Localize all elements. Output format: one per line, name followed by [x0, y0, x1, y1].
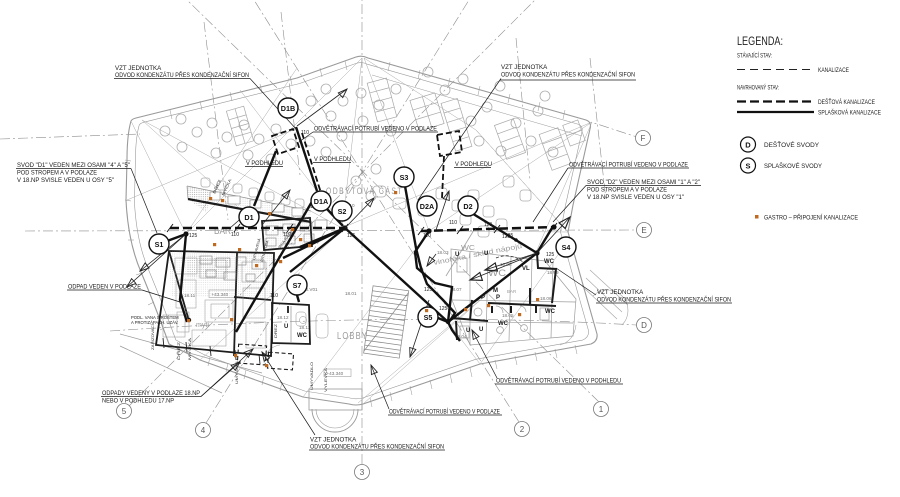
svg-text:18.05: 18.05 [502, 313, 514, 318]
svg-text:WC: WC [498, 321, 509, 327]
svg-text:D1B: D1B [281, 104, 295, 113]
svg-text:1: 1 [599, 405, 604, 414]
svg-text:GASTRO – PŘIPOJENÍ KANALIZACE: GASTRO – PŘIPOJENÍ KANALIZACE [764, 214, 858, 222]
svg-text:SVOD "D1" VEDEN MEZI OSAMI "4": SVOD "D1" VEDEN MEZI OSAMI "4" A "5" [17, 162, 130, 169]
svg-text:UMYVADLO: UMYVADLO [235, 356, 239, 384]
svg-text:VL: VL [522, 266, 530, 272]
svg-text:D2A: D2A [420, 202, 434, 211]
svg-text:ODVOD KONDENZÁTU PŘES KONDENZA: ODVOD KONDENZÁTU PŘES KONDENZAČNÍ SIFON [115, 71, 249, 79]
svg-text:110: 110 [270, 293, 278, 299]
svg-text:KANALIZACE: KANALIZACE [818, 67, 849, 74]
svg-text:VZT JEDNOTKA: VZT JEDNOTKA [115, 65, 162, 72]
svg-text:125: 125 [505, 233, 514, 239]
svg-text:S7: S7 [293, 281, 302, 290]
svg-text:110: 110 [484, 222, 492, 228]
svg-text:ODVĚTRÁVACÍ POTRUBÍ VEDENO V P: ODVĚTRÁVACÍ POTRUBÍ VEDENO V PODHLEDU [496, 377, 621, 385]
svg-text:E: E [641, 226, 646, 235]
svg-text:ODVĚTRÁVACÍ POTRUBÍ VEDENO V P: ODVĚTRÁVACÍ POTRUBÍ VEDENO V PODLAZE [569, 161, 688, 169]
svg-text:VZT JEDNOTKA: VZT JEDNOTKA [501, 64, 548, 71]
svg-text:S5: S5 [424, 313, 433, 322]
svg-text:VZT JEDNOTKA: VZT JEDNOTKA [310, 437, 357, 444]
svg-text:ODVOD KONDENZÁTU PŘES KONDENZA: ODVOD KONDENZÁTU PŘES KONDENZAČNÍ SIFON [597, 296, 731, 304]
svg-text:V PODHLEDU: V PODHLEDU [246, 160, 283, 167]
svg-text:ODBYTOVÁ ČÁST: ODBYTOVÁ ČÁST [326, 186, 403, 197]
svg-text:U: U [284, 324, 288, 330]
svg-text:S4: S4 [562, 243, 571, 252]
svg-text:18.03: 18.03 [437, 250, 449, 255]
svg-text:S: S [745, 162, 750, 171]
svg-text:125: 125 [439, 306, 448, 312]
svg-text:F: F [641, 134, 646, 143]
svg-text:S2: S2 [338, 207, 347, 216]
svg-text:P: P [481, 295, 485, 301]
svg-text:ZAŘIZOVACÍ: ZAŘIZOVACÍ [150, 323, 155, 350]
svg-text:D: D [745, 141, 751, 150]
svg-text:S3: S3 [400, 173, 409, 182]
svg-text:ODVĚTRÁVACÍ POTRUBÍ VEDENO V P: ODVĚTRÁVACÍ POTRUBÍ VEDENO V PODLAZE [389, 408, 500, 416]
svg-text:DREZ: DREZ [274, 323, 278, 338]
svg-text:U: U [484, 251, 488, 257]
svg-text:2: 2 [520, 425, 525, 434]
svg-text:ODPAD VEDEN V PODLAZE: ODPAD VEDEN V PODLAZE [68, 284, 141, 291]
svg-text:110: 110 [449, 220, 457, 226]
svg-text:P: P [496, 295, 500, 301]
svg-text:WC: WC [545, 309, 556, 315]
svg-text:5: 5 [122, 407, 127, 416]
svg-text:LOBBY: LOBBY [337, 331, 368, 342]
svg-text:LEGENDA:: LEGENDA: [737, 36, 783, 48]
svg-text:SVOD "D2" VEDEN MEZI OSAMI "1": SVOD "D2" VEDEN MEZI OSAMI "1" A "2" [587, 179, 700, 186]
svg-text:D2: D2 [463, 202, 472, 211]
svg-text:18.06: 18.06 [540, 296, 552, 301]
svg-text:110: 110 [301, 130, 309, 136]
svg-text:110: 110 [423, 233, 431, 239]
svg-text:D1A: D1A [314, 197, 328, 206]
svg-text:DŘEZ: DŘEZ [176, 341, 181, 360]
svg-text:125: 125 [424, 287, 433, 293]
svg-text:+43.340: +43.340 [327, 371, 344, 376]
svg-text:WC: WC [544, 259, 555, 265]
svg-text:125: 125 [189, 233, 198, 239]
svg-text:ODVOD KONDENZÁTU PŘES KONDENZA: ODVOD KONDENZÁTU PŘES KONDENZAČNÍ SIFON [310, 443, 444, 451]
svg-text:125: 125 [546, 252, 555, 258]
svg-text:STÁVAJÍCÍ STAV:: STÁVAJÍCÍ STAV: [737, 53, 772, 60]
svg-text:4: 4 [201, 426, 206, 435]
svg-text:NEBO V PODHLEDU 17.NP: NEBO V PODHLEDU 17.NP [102, 398, 174, 405]
svg-text:V 18.NP SVISLE VEDEN U OSY "5": V 18.NP SVISLE VEDEN U OSY "5" [17, 177, 114, 184]
svg-text:NAVRHOVANÝ STAV:: NAVRHOVANÝ STAV: [737, 85, 779, 92]
svg-text:ODVOD KONDENZÁTU PŘES KONDENZA: ODVOD KONDENZÁTU PŘES KONDENZAČNÍ SIFON [501, 71, 635, 79]
svg-text:ODVĚTRÁVACÍ POTRUBÍ VEDENO V P: ODVĚTRÁVACÍ POTRUBÍ VEDENO V PODLAZE [314, 125, 437, 133]
svg-text:WC: WC [297, 333, 308, 339]
svg-text:U: U [466, 328, 470, 334]
svg-text:POD STROPEM A V PODLAZE: POD STROPEM A V PODLAZE [587, 187, 667, 194]
svg-text:POD STROPEM A V PODLAZE: POD STROPEM A V PODLAZE [17, 170, 97, 177]
svg-text:U: U [479, 327, 483, 333]
svg-text:DEŠŤOVÉ SVODY: DEŠŤOVÉ SVODY [764, 141, 819, 149]
svg-text:18.01: 18.01 [345, 291, 357, 296]
svg-text:SPLAŠKOVÉ SVODY: SPLAŠKOVÉ SVODY [764, 163, 822, 170]
svg-text:D1: D1 [244, 213, 253, 222]
svg-text:UMYVADLO: UMYVADLO [310, 362, 314, 390]
svg-text:3: 3 [360, 468, 365, 477]
svg-text:V 18.NP SVISLE VEDEN U OSY "1": V 18.NP SVISLE VEDEN U OSY "1" [587, 194, 684, 201]
svg-text:V PODHLEDU: V PODHLEDU [314, 156, 351, 163]
svg-text:VZT JEDNOTKA: VZT JEDNOTKA [597, 289, 644, 296]
svg-text:U: U [455, 252, 459, 258]
svg-text:D: D [641, 321, 647, 330]
svg-text:SPLAŠKOVÁ KANALIZACE: SPLAŠKOVÁ KANALIZACE [818, 110, 881, 117]
svg-text:MYČKA: MYČKA [187, 337, 192, 360]
svg-text:VYLEVKA: VYLEVKA [324, 367, 328, 392]
svg-text:S1: S1 [155, 240, 164, 249]
svg-text:ODPADY VEDENY V PODLAZE 18.NP: ODPADY VEDENY V PODLAZE 18.NP [102, 390, 200, 397]
svg-text:18.12: 18.12 [277, 315, 289, 320]
svg-text:V PODHLEDU: V PODHLEDU [455, 161, 492, 168]
svg-text:110: 110 [231, 232, 239, 238]
svg-text:DEŠŤOVÁ KANALIZACE: DEŠŤOVÁ KANALIZACE [818, 98, 875, 106]
svg-text:M: M [493, 288, 498, 294]
svg-text:BAR: BAR [507, 289, 517, 294]
svg-text:125: 125 [347, 233, 356, 239]
